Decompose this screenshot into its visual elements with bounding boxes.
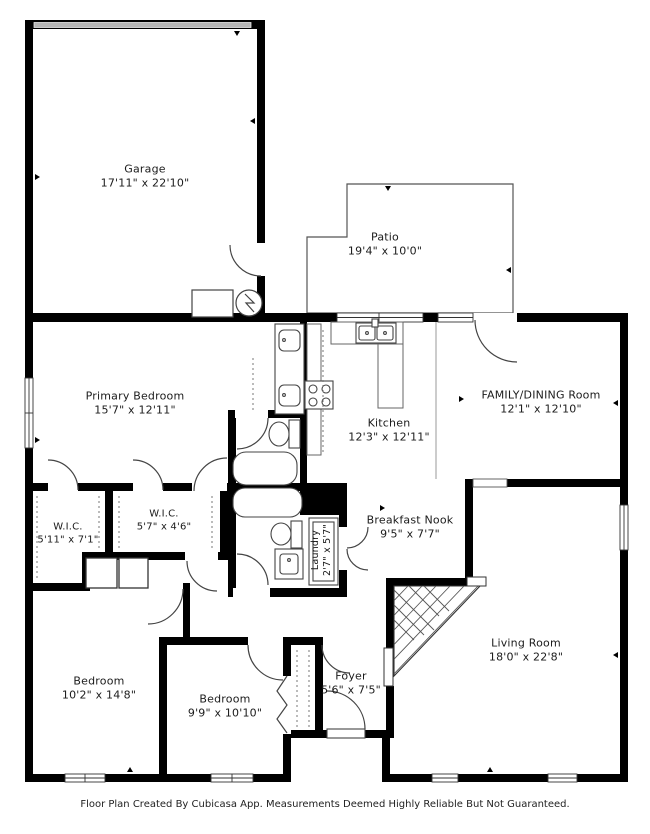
garage-utility xyxy=(192,290,262,317)
front-door-leaf xyxy=(327,729,365,738)
room-name: FAMILY/DINING Room xyxy=(481,389,600,403)
room-label-wic-1: W.I.C. 5'11" x 7'1" xyxy=(37,522,98,547)
room-dims: 15'7" x 12'11" xyxy=(86,404,185,418)
floor-plan-page: Garage 17'11" x 22'10" Patio 19'4" x 10'… xyxy=(0,0,650,834)
room-label-wic-2: W.I.C. 5'7" x 4'6" xyxy=(137,509,192,534)
hall-closets xyxy=(86,558,148,588)
room-dims: 17'11" x 22'10" xyxy=(101,177,190,191)
room-name: Primary Bedroom xyxy=(86,390,185,404)
room-label-garage: Garage 17'11" x 22'10" xyxy=(101,163,190,192)
room-name: Living Room xyxy=(489,637,563,651)
kitchen-sink xyxy=(356,319,396,343)
room-label-laundry: Laundry 2'7" x 5'7" xyxy=(310,524,334,576)
garage-door xyxy=(34,23,251,28)
room-label-patio: Patio 19'4" x 10'0" xyxy=(348,231,422,260)
stove xyxy=(305,381,333,409)
room-dims: 9'5" x 7'7" xyxy=(367,528,454,542)
room-label-foyer: Foyer 5'6" x 7'5" xyxy=(321,670,381,699)
staircase xyxy=(394,586,480,676)
room-dims: 12'1" x 12'10" xyxy=(481,403,600,417)
room-label-bedroom-1: Bedroom 10'2" x 14'8" xyxy=(62,675,136,704)
room-name: Kitchen xyxy=(348,417,429,431)
footer-disclaimer: Floor Plan Created By Cubicasa App. Meas… xyxy=(0,799,650,810)
room-name: W.I.C. xyxy=(137,509,192,522)
room-name: Breakfast Nook xyxy=(367,514,454,528)
room-label-kitchen: Kitchen 12'3" x 12'11" xyxy=(348,417,429,446)
room-name: Bedroom xyxy=(188,693,262,707)
room-dims: 5'11" x 7'1" xyxy=(37,534,98,547)
room-label-family-dining: FAMILY/DINING Room 12'1" x 12'10" xyxy=(481,389,600,418)
room-dims: 12'3" x 12'11" xyxy=(348,431,429,445)
room-label-living-room: Living Room 18'0" x 22'8" xyxy=(489,637,563,666)
room-dims: 5'6" x 7'5" xyxy=(321,684,381,698)
room-label-bedroom-2: Bedroom 9'9" x 10'10" xyxy=(188,693,262,722)
room-name: Bedroom xyxy=(62,675,136,689)
room-label-primary-bedroom: Primary Bedroom 15'7" x 12'11" xyxy=(86,390,185,419)
room-label-breakfast-nook: Breakfast Nook 9'5" x 7'7" xyxy=(367,514,454,543)
room-dims: 9'9" x 10'10" xyxy=(188,707,262,721)
room-name: Foyer xyxy=(321,670,381,684)
room-name: W.I.C. xyxy=(37,522,98,535)
room-dims: 10'2" x 14'8" xyxy=(62,689,136,703)
room-dims: 19'4" x 10'0" xyxy=(348,245,422,259)
room-name: Patio xyxy=(348,231,422,245)
room-dims: 5'7" x 4'6" xyxy=(137,521,192,534)
room-dims: 18'0" x 22'8" xyxy=(489,651,563,665)
cased-opening xyxy=(473,479,507,487)
room-name: Garage xyxy=(101,163,190,177)
room-name: Laundry xyxy=(310,524,322,576)
primary-bath-vanity xyxy=(275,324,304,414)
room-dims: 2'7" x 5'7" xyxy=(322,524,334,576)
